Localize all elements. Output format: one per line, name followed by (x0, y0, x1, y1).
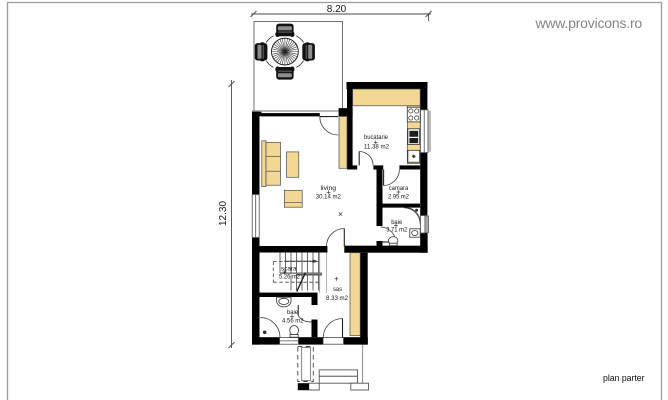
svg-text:www.provicons.ro: www.provicons.ro (534, 15, 642, 31)
svg-text:30.14 m2: 30.14 m2 (316, 193, 341, 200)
svg-text:5.26 m2: 5.26 m2 (279, 274, 300, 281)
svg-text:8.33 m2: 8.33 m2 (326, 295, 348, 302)
svg-text:8.20: 8.20 (327, 4, 347, 15)
svg-text:scara: scara (281, 266, 297, 273)
svg-text:baie: baie (391, 219, 402, 226)
svg-text:2.95 m2: 2.95 m2 (388, 193, 409, 200)
svg-text:camara: camara (389, 185, 409, 192)
svg-text:4.56 m2: 4.56 m2 (282, 317, 304, 324)
svg-text:3.71 m2: 3.71 m2 (386, 227, 407, 234)
svg-text:baie: baie (287, 309, 298, 316)
svg-text:11.38 m2: 11.38 m2 (364, 144, 389, 151)
svg-text:12.30: 12.30 (218, 201, 229, 226)
svg-text:sas: sas (333, 286, 342, 293)
svg-text:plan parter: plan parter (603, 373, 645, 384)
svg-text:bucatarie: bucatarie (364, 134, 388, 141)
